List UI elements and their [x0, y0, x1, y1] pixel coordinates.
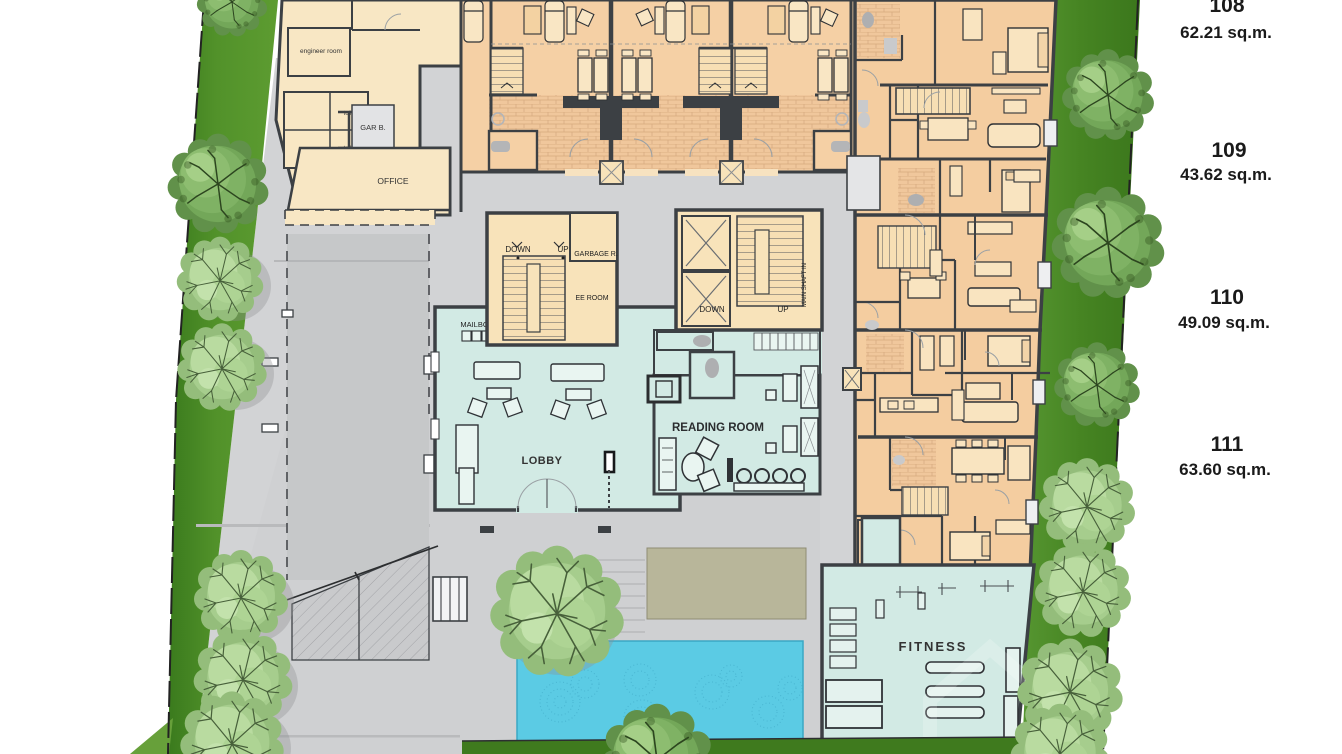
svg-text:49.09 sq.m.: 49.09 sq.m. — [1178, 313, 1270, 332]
svg-text:63.60 sq.m.: 63.60 sq.m. — [1179, 460, 1271, 479]
svg-text:LOBBY: LOBBY — [522, 455, 563, 467]
svg-text:READING ROOM: READING ROOM — [672, 422, 764, 434]
svg-text:MAIN SHAFT IN: MAIN SHAFT IN — [802, 263, 808, 307]
svg-text:engineer room: engineer room — [300, 48, 342, 55]
svg-text:110: 110 — [1210, 286, 1244, 309]
svg-text:FITNESS: FITNESS — [899, 639, 968, 654]
svg-text:111: 111 — [1211, 433, 1244, 456]
svg-text:UP: UP — [557, 245, 568, 254]
svg-text:109: 109 — [1211, 139, 1246, 162]
svg-text:GARBAGE R.: GARBAGE R. — [574, 251, 618, 258]
svg-text:108: 108 — [1209, 0, 1244, 17]
svg-text:UP: UP — [777, 305, 788, 314]
svg-text:OFFICE: OFFICE — [377, 176, 408, 186]
svg-text:DOWN: DOWN — [699, 305, 725, 314]
svg-text:43.62 sq.m.: 43.62 sq.m. — [1180, 165, 1272, 184]
svg-text:62.21 sq.m.: 62.21 sq.m. — [1180, 23, 1272, 42]
svg-text:EE ROOM: EE ROOM — [575, 295, 608, 302]
svg-text:DOWN: DOWN — [505, 245, 531, 254]
svg-text:GAR B.: GAR B. — [360, 123, 385, 132]
